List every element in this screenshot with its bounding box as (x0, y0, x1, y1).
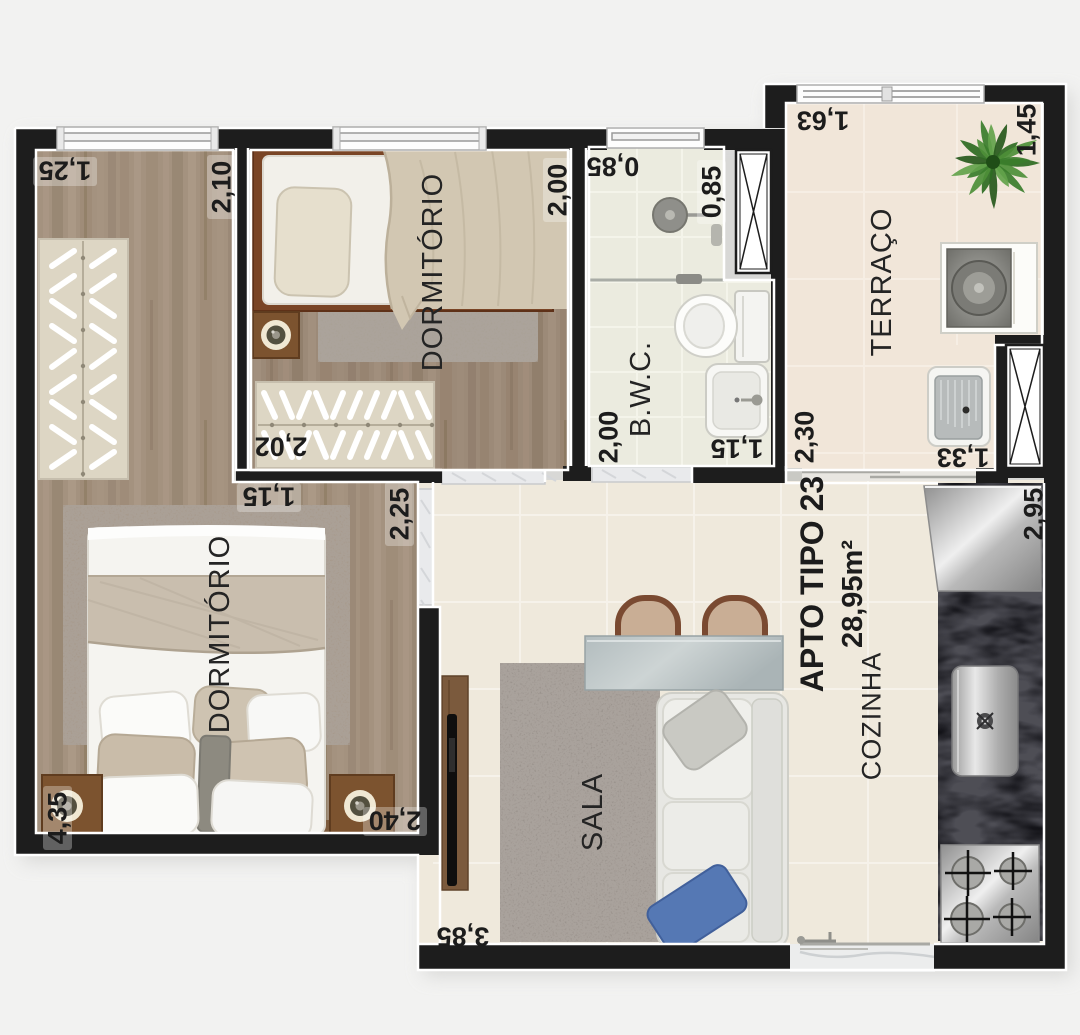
svg-text:2,40: 2,40 (369, 806, 422, 836)
svg-text:TERRAÇO: TERRAÇO (866, 208, 898, 357)
svg-text:DORMITÓRIO: DORMITÓRIO (203, 535, 236, 734)
svg-text:4,35: 4,35 (42, 792, 72, 845)
svg-text:2,10: 2,10 (206, 161, 236, 214)
svg-text:2,25: 2,25 (384, 488, 414, 541)
svg-text:0,85: 0,85 (587, 152, 640, 182)
svg-text:1,15: 1,15 (711, 434, 764, 464)
svg-text:1,63: 1,63 (797, 106, 850, 136)
svg-text:B.W.C.: B.W.C. (625, 341, 657, 437)
svg-text:0,85: 0,85 (696, 166, 726, 219)
svg-text:28,95m²: 28,95m² (837, 540, 869, 648)
svg-text:DORMITÓRIO: DORMITÓRIO (416, 173, 449, 372)
svg-text:3,85: 3,85 (437, 922, 490, 952)
svg-text:2,95: 2,95 (1018, 488, 1048, 541)
svg-text:APTO TIPO 23: APTO TIPO 23 (794, 476, 830, 692)
svg-text:1,15: 1,15 (243, 482, 296, 512)
svg-text:1,33: 1,33 (937, 443, 990, 473)
svg-text:COZINHA: COZINHA (856, 652, 886, 781)
svg-text:SALA: SALA (577, 773, 609, 851)
svg-text:1,25: 1,25 (39, 156, 92, 186)
svg-text:2,00: 2,00 (593, 411, 623, 464)
svg-text:2,30: 2,30 (789, 411, 819, 464)
svg-text:2,00: 2,00 (542, 164, 572, 217)
svg-text:1,45: 1,45 (1011, 104, 1041, 157)
svg-text:2,02: 2,02 (255, 432, 308, 462)
